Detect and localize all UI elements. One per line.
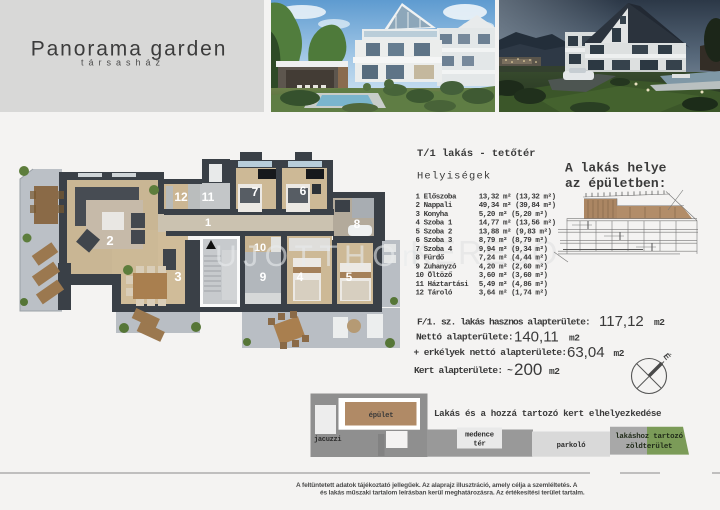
svg-text:parkoló: parkoló [557,442,586,450]
svg-text:társasház: társasház [81,58,165,68]
svg-text:UJOTTHOn: UJOTTHOn [215,240,425,273]
svg-text:lakáshoz tartozó: lakáshoz tartozó [615,433,684,441]
svg-text:8: 8 [354,217,361,231]
svg-text:4 Szoba 1: 4 Szoba 1 [416,220,453,228]
svg-text:az épületben:: az épületben: [565,176,666,191]
svg-text:14,77 m² (13,56 m²): 14,77 m² (13,56 m²) [479,219,556,228]
svg-text:3 Konyha: 3 Konyha [416,211,449,219]
svg-text:1: 1 [205,217,211,229]
svg-text:140,11: 140,11 [514,329,559,346]
svg-text:3,64 m² (1,74 m²): 3,64 m² (1,74 m²) [479,289,548,298]
svg-text:m2: m2 [654,317,665,328]
svg-text:Nettó alapterülete:: Nettó alapterülete: [416,332,513,343]
svg-text:A lakás helye: A lakás helye [565,161,667,176]
svg-text:m2: m2 [569,333,580,344]
svg-text:12: 12 [174,190,188,204]
svg-text:T/1 lakás - tetőtér: T/1 lakás - tetőtér [417,148,535,160]
svg-text:m2: m2 [614,348,625,359]
svg-text:+ erkélyek nettó alapterülete:: + erkélyek nettó alapterülete: [414,347,567,358]
svg-text:tér: tér [473,441,485,449]
svg-text:11: 11 [202,190,215,204]
svg-text:7,24 m² (4,44 m²): 7,24 m² (4,44 m²) [479,254,548,263]
svg-text:5,49 m² (4,86 m²): 5,49 m² (4,86 m²) [479,280,548,289]
svg-text:12 Tároló: 12 Tároló [416,290,453,298]
svg-text:10 Öltöző: 10 Öltöző [416,271,453,280]
svg-text:49,34 m² (39,84 m²): 49,34 m² (39,84 m²) [479,201,556,210]
svg-text:2 Nappali: 2 Nappali [416,202,453,210]
svg-text:9,94 m² (9,34 m²): 9,94 m² (9,34 m²) [479,245,548,254]
svg-text:3,60 m² (3,60 m²): 3,60 m² (3,60 m²) [479,271,548,280]
svg-text:1 Előszoba: 1 Előszoba [416,194,457,202]
svg-text:Kert alapterülete: ~: Kert alapterülete: ~ [414,365,513,376]
svg-text:épület: épület [369,412,394,420]
svg-text:F/1. sz. lakás hasznos alapter: F/1. sz. lakás hasznos alapterülete: [417,317,590,328]
svg-text:63,04: 63,04 [567,344,605,361]
svg-text:5,20 m² (5,20 m²): 5,20 m² (5,20 m²) [479,210,548,219]
svg-text:7: 7 [252,185,259,199]
svg-text:jacuzzi: jacuzzi [314,436,341,444]
svg-text:2: 2 [106,233,113,248]
svg-text:A feltüntetett adatok tájékozt: A feltüntetett adatok tájékoztató jelleg… [296,482,578,489]
svg-text:13,88 m² (9,83 m²): 13,88 m² (9,83 m²) [479,227,552,236]
svg-text:200: 200 [514,360,542,379]
svg-text:zöldterület: zöldterület [626,443,673,451]
svg-text:117,12: 117,12 [599,313,644,330]
svg-text:m2: m2 [549,366,560,377]
svg-text:5 Szoba 2: 5 Szoba 2 [416,228,453,236]
svg-text:Lakás és a hozzá tartozó kert: Lakás és a hozzá tartozó kert elhelyezke… [434,408,662,419]
svg-text:és lakás műszaki tartalom leír: és lakás műszaki tartalom leírásban kerü… [320,490,585,497]
svg-text:8 Fürdő: 8 Fürdő [416,255,445,263]
svg-text:13,32 m² (13,32 m²): 13,32 m² (13,32 m²) [479,193,556,202]
svg-text:6 Szoba 3: 6 Szoba 3 [416,237,453,245]
svg-text:11 Háztartási: 11 Háztartási [416,281,470,289]
svg-text:4,20 m² (2,60 m²): 4,20 m² (2,60 m²) [479,262,548,271]
svg-text:Helyiségek: Helyiségek [417,171,491,183]
svg-text:7 Szoba 4: 7 Szoba 4 [416,246,453,254]
svg-text:6: 6 [300,184,307,198]
svg-text:9 Zuhanyzó: 9 Zuhanyzó [416,263,457,271]
svg-text:medence: medence [465,432,494,440]
svg-text:3: 3 [174,269,181,284]
svg-text:8,79 m² (8,79 m²): 8,79 m² (8,79 m²) [479,236,548,245]
